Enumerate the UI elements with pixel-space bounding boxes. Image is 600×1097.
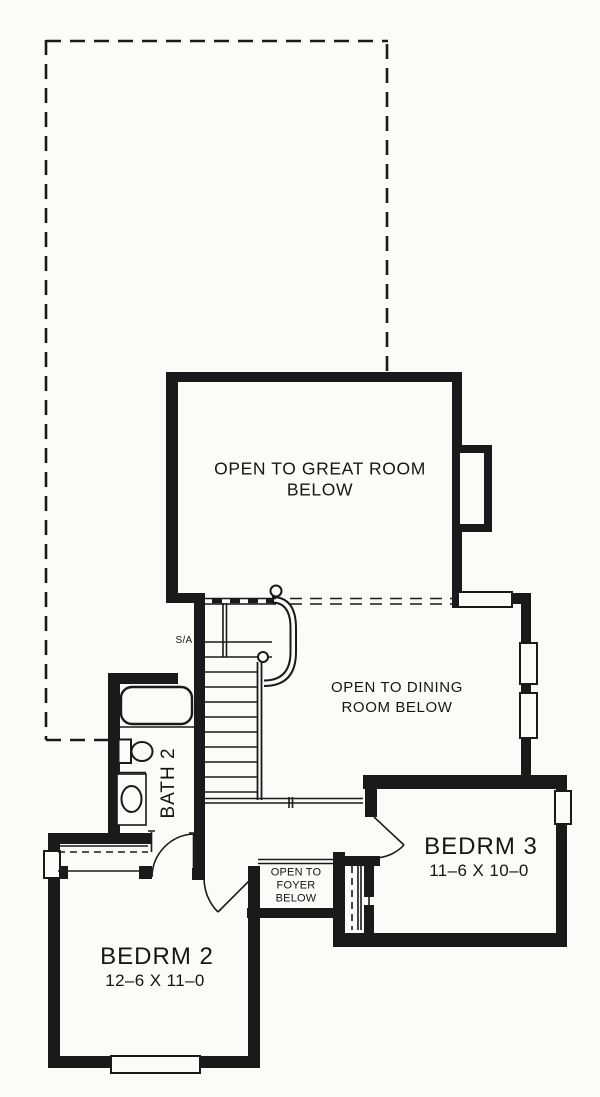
smoke-alarm-label: S/A: [175, 635, 192, 647]
window-dining-north: [458, 592, 512, 607]
great-room-label: OPEN TO GREAT ROOM BELOW: [180, 458, 460, 499]
window-dining-east-1: [520, 643, 537, 684]
bath2-label: BATH 2: [158, 747, 180, 818]
sink-icon: [117, 773, 146, 826]
window-bedroom3-east: [555, 791, 571, 824]
foyer-opening-edge: [258, 860, 333, 864]
toilet-icon: [119, 740, 153, 764]
window-dining-east-2: [520, 693, 537, 738]
window-closet-west: [44, 851, 60, 878]
floor-plan: OPEN TO GREAT ROOM BELOW OPEN TO DINING …: [0, 0, 600, 1097]
stair-treads: [203, 672, 257, 792]
foyer-label: OPEN TO FOYER BELOW: [271, 867, 322, 906]
bedroom2-label: BEDRM 2: [100, 943, 214, 971]
stair-handrail-lower: [258, 652, 269, 800]
bath-door: [148, 831, 198, 877]
dining-room-label: OPEN TO DINING ROOM BELOW: [331, 678, 463, 718]
bedroom3-door: [374, 817, 404, 858]
first-floor-footprint-outline: [46, 40, 388, 740]
bedroom3-label: BEDRM 3: [424, 833, 538, 861]
chimney-chase: [456, 449, 488, 528]
window-bedroom2-south: [111, 1056, 200, 1073]
floor-plan-drawing: [0, 0, 600, 1097]
bath-fixtures: [117, 687, 194, 825]
bedroom2-door: [204, 878, 252, 912]
bedroom2-dimensions: 12–6 X 11–0: [105, 971, 205, 991]
bedroom3-dimensions: 11–6 X 10–0: [429, 861, 529, 881]
overlook-railing: [204, 799, 363, 804]
bathtub-icon: [120, 687, 194, 727]
